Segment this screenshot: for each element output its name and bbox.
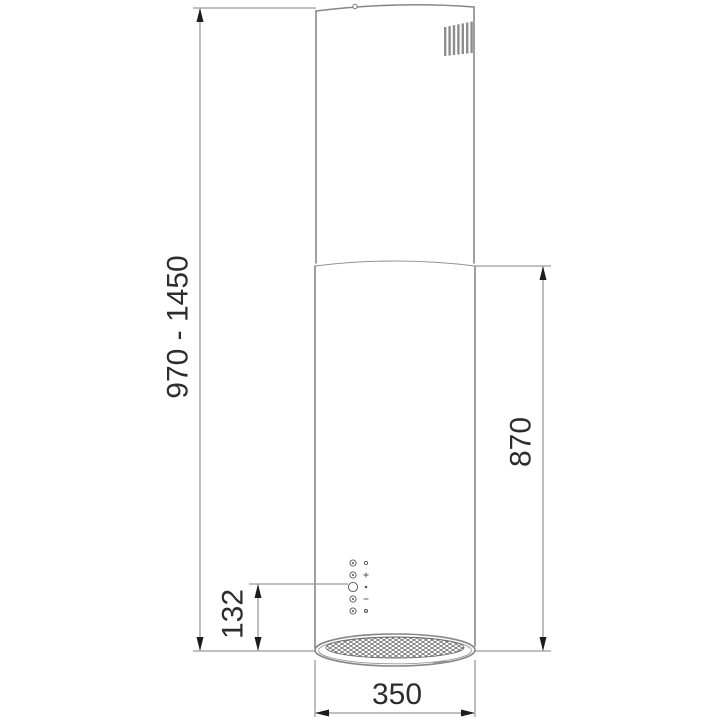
dim-overall-height-arrow-up	[197, 8, 204, 22]
dimension-drawing-canvas: 970 - 1450 870 132 350	[0, 0, 720, 720]
body-section	[315, 266, 475, 648]
dim-diameter-arrow-right	[461, 710, 475, 717]
dot-symbol-icon	[365, 586, 368, 589]
dim-overall-height-arrow-down	[197, 637, 204, 651]
control-panel-buttons-icon	[348, 560, 368, 614]
filter-grille-icon	[315, 634, 475, 666]
dim-overall-height-label: 970 - 1450	[162, 255, 195, 398]
dim-overall-height: 970 - 1450	[162, 8, 317, 651]
dim-body-height-label: 870	[505, 417, 538, 467]
seam-arc	[315, 261, 475, 266]
dim-body-height-arrow-up	[540, 266, 547, 280]
dim-diameter: 350	[315, 660, 475, 717]
screw-hole-icon	[353, 4, 357, 8]
dim-body-height: 870	[475, 266, 551, 651]
dim-diameter-label: 350	[372, 678, 422, 711]
vent-louver-icon	[444, 22, 473, 56]
dim-control-offset-arrow-down	[255, 637, 262, 651]
chimney-section	[316, 4, 474, 263]
grille-mesh	[326, 637, 464, 658]
dim-diameter-arrow-left	[315, 710, 329, 717]
dim-control-offset-arrow-up	[255, 584, 262, 598]
dim-body-height-arrow-down	[540, 637, 547, 651]
fan-symbol-icon	[364, 561, 367, 564]
cooker-hood-dimension-drawing: 970 - 1450 870 132 350	[0, 0, 720, 720]
dim-control-offset-label: 132	[217, 589, 250, 639]
hood-button-3	[348, 582, 357, 591]
plus-symbol-icon	[364, 573, 369, 578]
chimney-top-arc	[316, 5, 474, 11]
hood-outline	[315, 4, 475, 666]
